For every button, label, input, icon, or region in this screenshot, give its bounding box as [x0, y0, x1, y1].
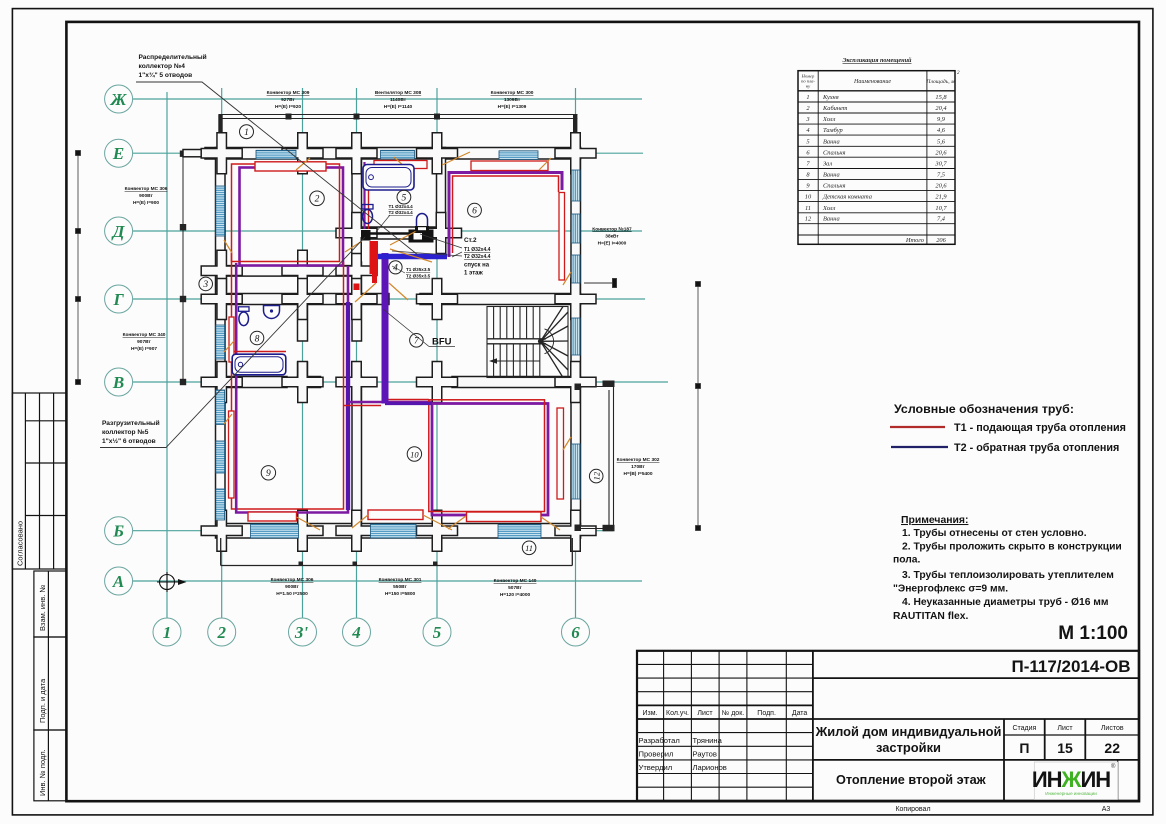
svg-text:коллектор №4: коллектор №4 [139, 63, 186, 70]
svg-text:Конвектор №187: Конвектор №187 [592, 227, 632, 233]
svg-text:Наименование: Наименование [853, 79, 891, 85]
svg-text:Т2 Ø32х4.4: Т2 Ø32х4.4 [464, 254, 491, 260]
svg-text:М 1:100: М 1:100 [1058, 623, 1128, 644]
svg-text:907Вт: 907Вт [137, 339, 151, 345]
svg-text:Т2 - обратная труба отопления: Т2 - обратная труба отопления [954, 442, 1119, 454]
svg-text:Разгрузительный: Разгрузительный [102, 419, 160, 427]
svg-text:3: 3 [202, 280, 208, 290]
svg-text:Н=(E) I=1140: Н=(E) I=1140 [384, 104, 413, 110]
svg-text:Инв. № подл.: Инв. № подл. [38, 749, 47, 796]
svg-text:Разработал: Разработал [639, 736, 680, 745]
svg-text:9: 9 [266, 469, 271, 479]
svg-text:15: 15 [1057, 740, 1073, 756]
svg-text:900Вт: 900Вт [285, 584, 299, 590]
svg-text:Площадь, м: Площадь, м [925, 78, 955, 85]
svg-text:4,6: 4,6 [937, 127, 946, 134]
svg-text:Проверил: Проверил [639, 750, 674, 759]
svg-text:Ст.2: Ст.2 [464, 237, 477, 244]
svg-text:8: 8 [255, 334, 260, 344]
svg-text:Н=(E) I=907: Н=(E) I=907 [131, 346, 157, 352]
svg-text:Т2 Ø32х4.4: Т2 Ø32х4.4 [389, 210, 414, 215]
svg-text:1"х½" 6 отводов: 1"х½" 6 отводов [102, 437, 156, 445]
svg-text:1: 1 [806, 94, 809, 101]
svg-text:9,9: 9,9 [937, 116, 946, 123]
svg-text:Примечания:: Примечания: [901, 515, 968, 526]
svg-text:3. Трубы теплоизолировать утеп: 3. Трубы теплоизолировать утеплителем [902, 569, 1114, 581]
svg-text:11: 11 [525, 543, 533, 553]
svg-text:Зал: Зал [823, 160, 832, 167]
svg-text:Условные обозначения труб:: Условные обозначения труб: [894, 402, 1074, 416]
svg-text:Изм.: Изм. [643, 710, 658, 717]
svg-text:15,8: 15,8 [935, 94, 947, 101]
svg-text:5: 5 [433, 623, 442, 642]
svg-text:Т2 Ø35х3.5: Т2 Ø35х3.5 [406, 274, 431, 279]
svg-text:11: 11 [805, 205, 811, 212]
svg-text:1. Трубы отнесены от стен усло: 1. Трубы отнесены от стен условно. [902, 527, 1087, 539]
svg-text:1309Вт: 1309Вт [504, 97, 521, 103]
svg-text:6: 6 [472, 207, 477, 217]
svg-text:5: 5 [806, 138, 809, 145]
svg-text:Взам. инв. №: Взам. инв. № [38, 585, 47, 631]
svg-text:20,6: 20,6 [935, 149, 947, 156]
svg-text:7,5: 7,5 [937, 172, 945, 179]
svg-text:Подп. и дата: Подп. и дата [38, 678, 47, 723]
svg-text:спуск на: спуск на [464, 263, 490, 269]
svg-text:12: 12 [805, 216, 812, 223]
svg-text:Кабинет: Кабинет [822, 105, 848, 112]
svg-text:П: П [1019, 740, 1029, 756]
svg-text:20,4: 20,4 [935, 105, 947, 112]
svg-text:Б: Б [112, 522, 124, 541]
svg-text:2: 2 [216, 623, 226, 642]
svg-text:Т1 - подающая труба отопления: Т1 - подающая труба отопления [954, 422, 1126, 434]
svg-text:Н=120 I=4000: Н=120 I=4000 [500, 592, 531, 598]
svg-text:21,9: 21,9 [935, 194, 947, 201]
svg-text:20,6: 20,6 [935, 183, 947, 190]
svg-text:Н=(E) I=900: Н=(E) I=900 [133, 200, 159, 206]
svg-text:Детская комната: Детская комната [822, 194, 872, 201]
svg-text:170Вт: 170Вт [631, 464, 645, 470]
svg-text:12: 12 [592, 471, 602, 480]
svg-text:А: А [112, 572, 124, 591]
svg-text:Утвердил: Утвердил [639, 763, 673, 772]
svg-text:Подп.: Подп. [757, 710, 776, 717]
svg-text:Конвектор МС 306: Конвектор МС 306 [125, 186, 168, 192]
svg-text:38кВт: 38кВт [605, 234, 619, 240]
svg-text:по пла-: по пла- [801, 79, 815, 84]
svg-text:В: В [112, 373, 124, 392]
svg-text:Т1 Ø32х4.4: Т1 Ø32х4.4 [464, 247, 491, 253]
svg-text:Экспликация помещений: Экспликация помещений [843, 57, 912, 64]
svg-text:1 этаж: 1 этаж [464, 271, 484, 277]
svg-text:3: 3 [805, 116, 809, 123]
svg-text:4. Неуказанные диаметры труб -: 4. Неуказанные диаметры труб - Ø16 мм [902, 596, 1109, 608]
svg-text:900Вт: 900Вт [139, 193, 153, 199]
svg-text:10: 10 [805, 194, 812, 201]
svg-text:Конвектор МС 309: Конвектор МС 309 [267, 90, 310, 96]
svg-text:А3: А3 [1102, 806, 1111, 813]
svg-text:Номер: Номер [801, 74, 815, 79]
svg-text:Г: Г [112, 290, 124, 309]
svg-text:застройки: застройки [876, 740, 941, 755]
svg-text:Т1 Ø32х4.4: Т1 Ø32х4.4 [389, 204, 414, 209]
svg-text:BFU: BFU [432, 337, 452, 348]
svg-text:Кухня: Кухня [822, 94, 839, 101]
svg-text:Т1 Ø35х3.5: Т1 Ø35х3.5 [406, 267, 431, 272]
svg-text:927Вт: 927Вт [281, 97, 295, 103]
svg-text:Конвектор МС 302: Конвектор МС 302 [617, 457, 660, 463]
svg-text:Н=(E) I=4000: Н=(E) I=4000 [598, 241, 627, 247]
svg-text:1140Вт: 1140Вт [390, 97, 407, 103]
svg-text:Вентилятор МС 308: Вентилятор МС 308 [375, 90, 422, 96]
svg-text:2: 2 [315, 195, 320, 205]
svg-text:П-117/2014-ОВ: П-117/2014-ОВ [1011, 657, 1130, 676]
svg-text:Кол.уч.: Кол.уч. [666, 710, 689, 717]
svg-text:1"х¾" 5 отводов: 1"х¾" 5 отводов [139, 71, 193, 79]
svg-text:№ док.: № док. [722, 710, 744, 717]
svg-text:коллектор №5: коллектор №5 [102, 429, 149, 436]
svg-text:Стадия: Стадия [1012, 725, 1036, 732]
svg-text:206: 206 [936, 237, 946, 244]
svg-text:ИНЖИН: ИНЖИН [1032, 767, 1110, 792]
svg-text:Листов: Листов [1101, 725, 1124, 732]
svg-text:Конвектор МС 306: Конвектор МС 306 [271, 577, 314, 583]
svg-text:Трянина: Трянина [693, 736, 723, 745]
svg-text:Спальня: Спальня [823, 149, 846, 156]
svg-text:Лист: Лист [1057, 725, 1073, 732]
svg-text:30,7: 30,7 [934, 160, 947, 167]
svg-text:Ванна: Ванна [823, 138, 840, 145]
svg-text:Спальня: Спальня [823, 183, 846, 190]
svg-text:3': 3' [294, 623, 309, 642]
svg-text:Жилой дом индивидуальной: Жилой дом индивидуальной [815, 724, 1002, 739]
svg-text:5,6: 5,6 [937, 138, 946, 145]
svg-text:Конвектор МС 340: Конвектор МС 340 [123, 332, 166, 338]
svg-text:Н=150 I=5800: Н=150 I=5800 [385, 591, 416, 597]
svg-text:507Вт: 507Вт [508, 585, 522, 591]
svg-text:Лист: Лист [697, 710, 713, 717]
svg-text:1: 1 [244, 128, 249, 138]
svg-text:5: 5 [402, 193, 407, 203]
svg-text:RAUTITAN flex.: RAUTITAN flex. [893, 611, 968, 622]
svg-text:Согласовано: Согласовано [16, 521, 25, 566]
svg-text:7,4: 7,4 [937, 216, 946, 223]
svg-text:Ж: Ж [110, 90, 128, 109]
svg-text:Ванна: Ванна [823, 216, 840, 223]
svg-text:2. Трубы проложить скрыто в ко: 2. Трубы проложить скрыто в конструкции [902, 541, 1122, 553]
svg-text:Ванна: Ванна [823, 172, 840, 179]
svg-text:Н=(E) I=920: Н=(E) I=920 [275, 104, 301, 110]
svg-text:Инженерные инновации: Инженерные инновации [1045, 791, 1097, 796]
svg-text:Конвектор МС 300: Конвектор МС 300 [491, 90, 534, 96]
svg-text:22: 22 [1104, 740, 1120, 756]
svg-text:Холл: Холл [822, 205, 836, 212]
svg-text:Холл: Холл [822, 116, 836, 123]
svg-text:пола.: пола. [893, 555, 921, 566]
svg-text:Дата: Дата [792, 710, 808, 717]
svg-text:"Энергофлекс σ=9 мм.: "Энергофлекс σ=9 мм. [893, 583, 1008, 595]
svg-text:1: 1 [163, 623, 172, 642]
svg-text:®: ® [1111, 763, 1116, 770]
svg-text:Копировал: Копировал [895, 806, 930, 813]
svg-text:10: 10 [410, 449, 419, 459]
svg-text:Н=(B) I=5400: Н=(B) I=5400 [624, 471, 653, 477]
svg-text:Распределительный: Распределительный [139, 53, 207, 61]
svg-text:10,7: 10,7 [935, 205, 947, 212]
svg-text:Тамбур: Тамбур [823, 127, 843, 134]
svg-text:Итого: Итого [905, 237, 924, 244]
svg-text:550Вт: 550Вт [393, 584, 407, 590]
svg-text:Д: Д [111, 222, 126, 241]
svg-text:Н=1.50 I=2500: Н=1.50 I=2500 [276, 591, 308, 597]
svg-text:6: 6 [571, 623, 580, 642]
svg-text:Е: Е [112, 144, 124, 163]
svg-text:Конвектор МС 301: Конвектор МС 301 [379, 577, 422, 583]
svg-text:4: 4 [351, 623, 361, 642]
svg-text:Н=(E) I=1309: Н=(E) I=1309 [498, 104, 527, 110]
svg-text:Отопление второй этаж: Отопление второй этаж [836, 773, 987, 787]
svg-text:Раутов: Раутов [693, 750, 717, 759]
svg-text:Конвектор МС 140: Конвектор МС 140 [494, 578, 537, 584]
svg-text:Ларионов: Ларионов [693, 763, 727, 772]
